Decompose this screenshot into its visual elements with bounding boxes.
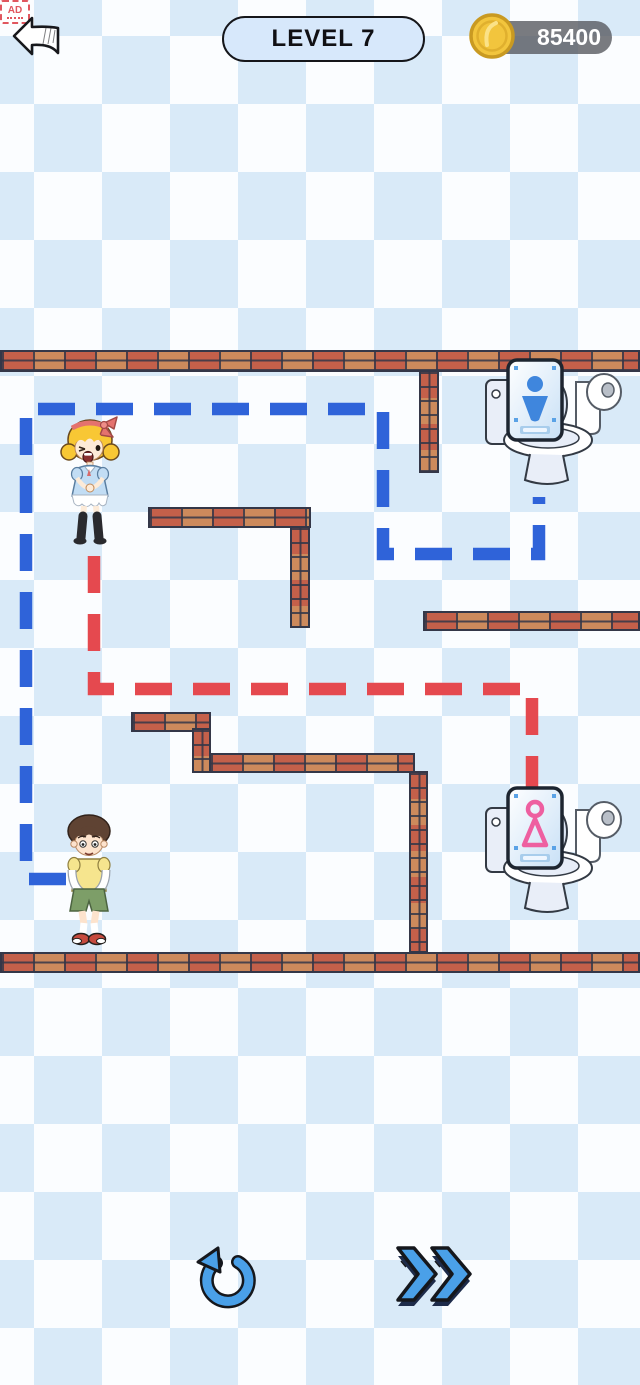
level-label: LEVEL 7 [272, 25, 376, 53]
boy-character[interactable] [54, 812, 124, 948]
brick-wall [0, 952, 640, 973]
toilet-paper-icon [576, 374, 621, 434]
back-arrow-icon [14, 18, 58, 54]
brick-wall [419, 370, 439, 473]
restart-button[interactable] [194, 1242, 256, 1312]
coin-icon [468, 12, 516, 60]
back-button[interactable] [12, 14, 64, 60]
brick-wall [148, 507, 311, 528]
skip-level-button[interactable] [396, 1246, 478, 1308]
toilet-paper-icon [576, 802, 621, 862]
girl-character[interactable] [58, 414, 122, 546]
mens-toilet-station[interactable] [478, 346, 638, 496]
brick-wall [423, 611, 640, 631]
womens-toilet-station[interactable] [478, 774, 638, 924]
brick-wall [409, 771, 428, 953]
game-screen: LEVEL 7 85400 [0, 0, 640, 1385]
brick-wall [209, 753, 415, 773]
coin-count: 85400 [537, 24, 601, 51]
womens-room-sign [506, 786, 564, 870]
level-badge: LEVEL 7 [222, 16, 425, 62]
brick-wall [290, 526, 310, 628]
skip-icon [398, 1248, 470, 1306]
restart-icon [198, 1248, 249, 1301]
mens-room-sign [506, 358, 564, 442]
